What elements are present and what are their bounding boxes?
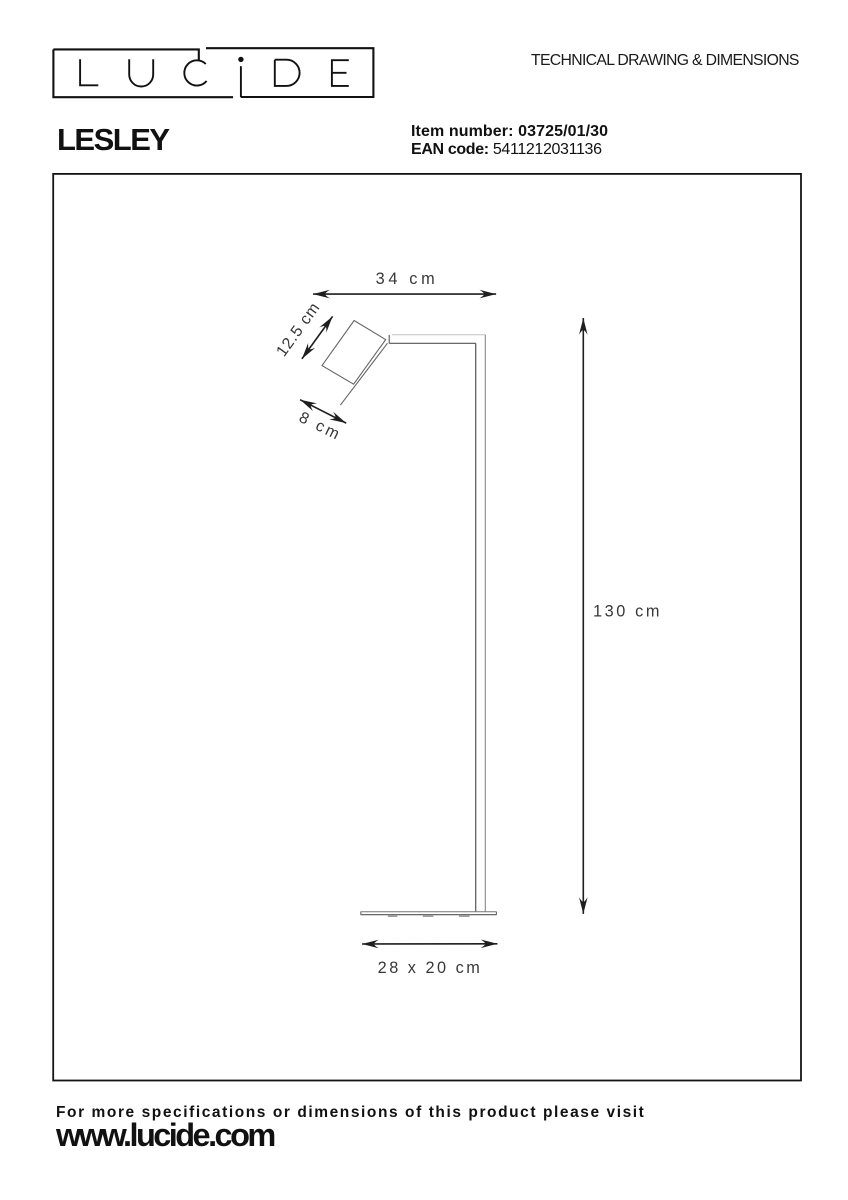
svg-text:8 cm: 8 cm [296,409,344,444]
svg-text:28 x 20 cm: 28 x 20 cm [378,959,483,977]
svg-text:130 cm: 130 cm [593,603,662,621]
svg-text:34 cm: 34 cm [376,270,439,288]
svg-text:12.5 cm: 12.5 cm [273,299,323,360]
